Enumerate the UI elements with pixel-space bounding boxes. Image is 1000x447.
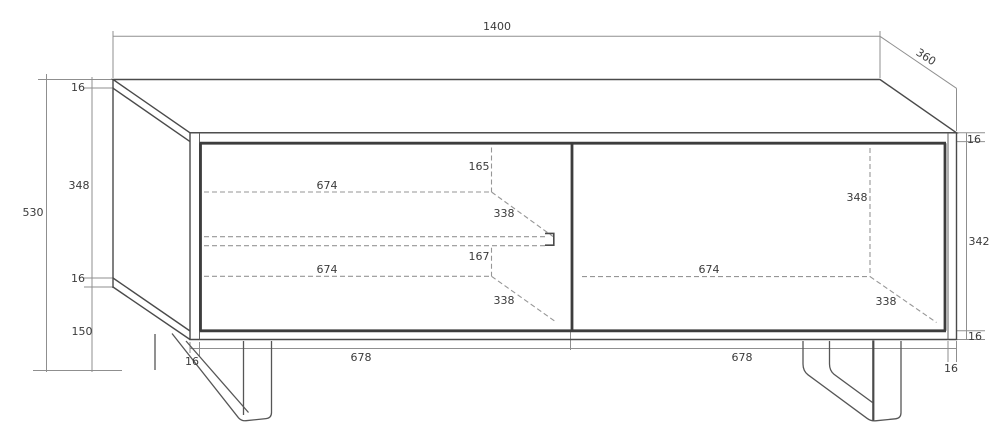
dim-label-side-panel-thickness-bottom-left: 16	[185, 355, 199, 368]
dim-label-overall-height: 530	[23, 206, 44, 219]
dim-label-door-width-right: 678	[732, 351, 753, 364]
dim-label-top-panel-thickness-right: 16	[967, 133, 981, 146]
dim-label-interior-depth-right: 338	[876, 295, 897, 308]
technical-drawing-canvas: 1400360530163481615016342161667867816165…	[0, 0, 1000, 447]
legs	[155, 334, 901, 421]
side-bottom-edge-upper	[113, 278, 190, 331]
dim-label-shelf-clearance-top: 165	[469, 160, 490, 173]
dim-label-top-panel-thickness-left: 16	[71, 81, 85, 94]
left-leg-outer	[172, 334, 272, 421]
dim-label-shelf-width-upper: 674	[317, 179, 338, 192]
right-leg-outer	[803, 341, 901, 421]
side-bottom-edge-lower	[113, 287, 190, 340]
shelf-front-corner	[545, 233, 554, 245]
top-face	[113, 80, 957, 133]
dim-label-side-panel-height: 348	[69, 179, 90, 192]
dim-label-interior-height-right-side: 342	[969, 235, 990, 248]
dim-label-bottom-panel-thickness-right: 16	[968, 330, 982, 343]
dim-label-shelf-depth-upper: 338	[494, 207, 515, 220]
dim-label-side-panel-thickness-bottom-right: 16	[944, 362, 958, 375]
dim-label-shelf-clearance-bottom: 167	[469, 250, 490, 263]
hidden-interior-lines	[204, 148, 937, 323]
dim-label-overall-depth: 360	[914, 46, 939, 68]
dim-label-overall-width: 1400	[483, 20, 511, 33]
furniture-dimension-drawing: 1400360530163481615016342161667867816165…	[0, 0, 1000, 447]
dim-label-shelf-depth-lower: 338	[494, 294, 515, 307]
dim-label-interior-width-right: 674	[699, 263, 720, 276]
cabinet-body	[113, 80, 957, 340]
dim-label-leg-height: 150	[72, 325, 93, 338]
dim-label-shelf-width-lower: 674	[317, 263, 338, 276]
left-leg-inner-diagonal	[186, 341, 249, 413]
dim-label-door-width-left: 678	[351, 351, 372, 364]
dim-label-bottom-panel-thickness-left: 16	[71, 272, 85, 285]
dimension-labels: 1400360530163481615016342161667867816165…	[23, 20, 990, 375]
dim-label-interior-height-right-compartment: 348	[847, 191, 868, 204]
right-leg-inner	[830, 341, 873, 403]
top-panel-left-edge	[113, 88, 190, 141]
